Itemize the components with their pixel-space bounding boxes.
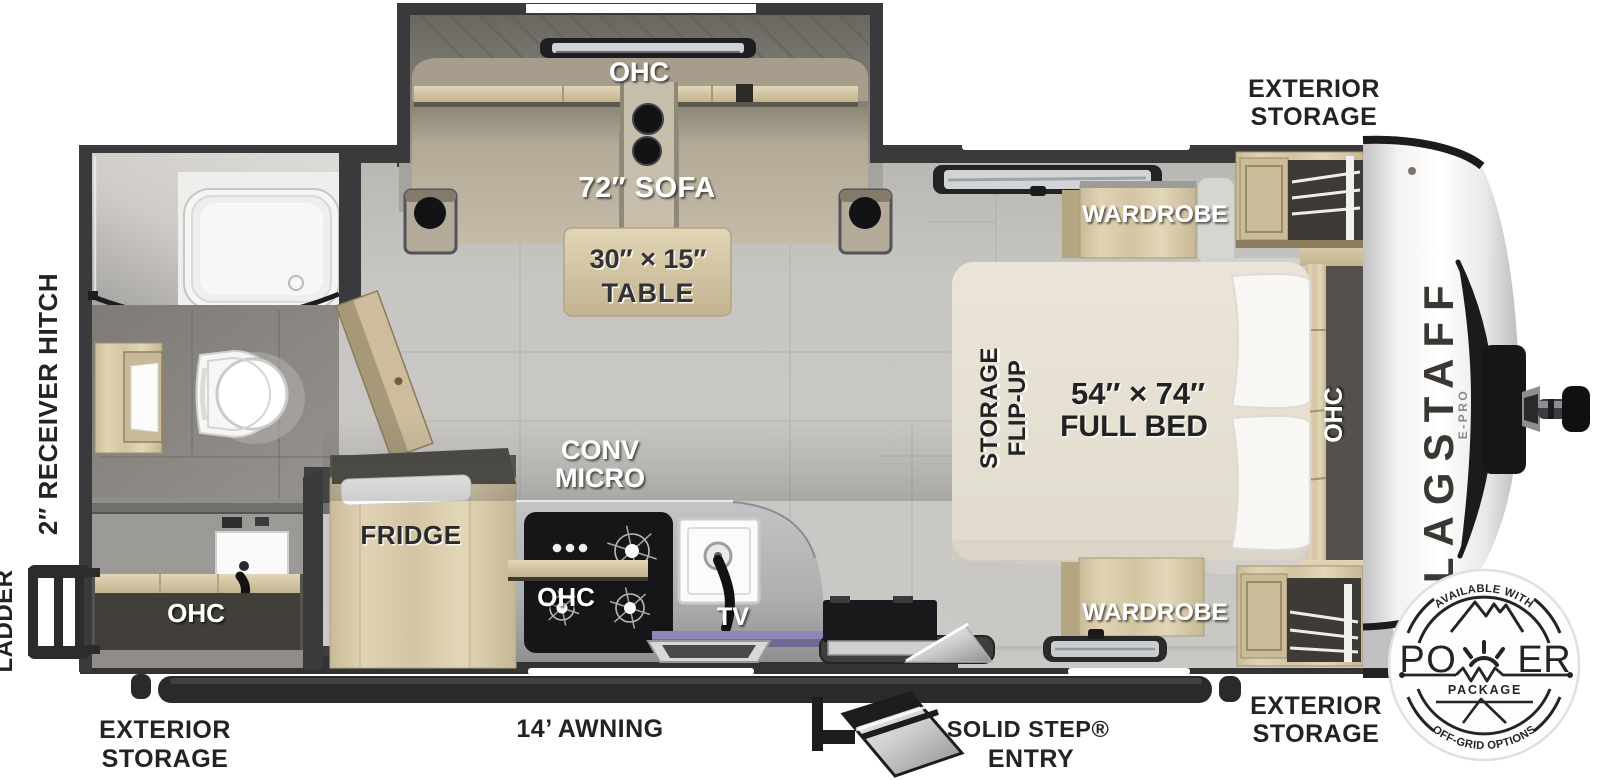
svg-text:ENTRY: ENTRY: [988, 745, 1074, 773]
svg-text:EXTERIOR: EXTERIOR: [1248, 75, 1380, 103]
svg-text:E-PRO: E-PRO: [1456, 389, 1470, 440]
svg-text:PACKAGE: PACKAGE: [1448, 683, 1522, 697]
svg-text:14’ AWNING: 14’ AWNING: [516, 715, 663, 743]
svg-text:WARDROBE: WARDROBE: [1082, 201, 1228, 228]
svg-text:FLAGSTAFF: FLAGSTAFF: [1415, 274, 1462, 620]
svg-text:OHC: OHC: [609, 57, 669, 87]
svg-text:STORAGE: STORAGE: [102, 745, 229, 773]
svg-text:2″ RECEIVER HITCH: 2″ RECEIVER HITCH: [33, 273, 63, 535]
svg-text:FLIP-UP: FLIP-UP: [1004, 360, 1031, 457]
svg-text:WARDROBE: WARDROBE: [1082, 599, 1228, 626]
svg-text:FRIDGE: FRIDGE: [360, 520, 461, 550]
svg-text:CONV: CONV: [561, 435, 639, 465]
svg-text:EXTERIOR: EXTERIOR: [99, 716, 231, 744]
svg-text:SOLID STEP®: SOLID STEP®: [947, 716, 1110, 742]
svg-text:TABLE: TABLE: [602, 278, 695, 308]
svg-text:OHC: OHC: [1320, 387, 1348, 443]
svg-text:EXTERIOR: EXTERIOR: [1250, 692, 1382, 720]
svg-text:OHC: OHC: [167, 598, 225, 628]
svg-text:30″ × 15″: 30″ × 15″: [590, 244, 707, 274]
svg-text:54″ × 74″: 54″ × 74″: [1071, 376, 1205, 411]
svg-text:STORAGE: STORAGE: [976, 347, 1003, 469]
svg-text:MICRO: MICRO: [555, 463, 645, 493]
svg-text:STORAGE: STORAGE: [1251, 103, 1378, 131]
svg-text:FULL BED: FULL BED: [1060, 410, 1208, 443]
svg-text:STORAGE: STORAGE: [1253, 720, 1380, 748]
svg-text:OHC: OHC: [537, 582, 595, 612]
svg-text:LADDER: LADDER: [0, 570, 18, 673]
svg-text:TV: TV: [717, 603, 749, 631]
svg-text:72″ SOFA: 72″ SOFA: [578, 172, 715, 204]
